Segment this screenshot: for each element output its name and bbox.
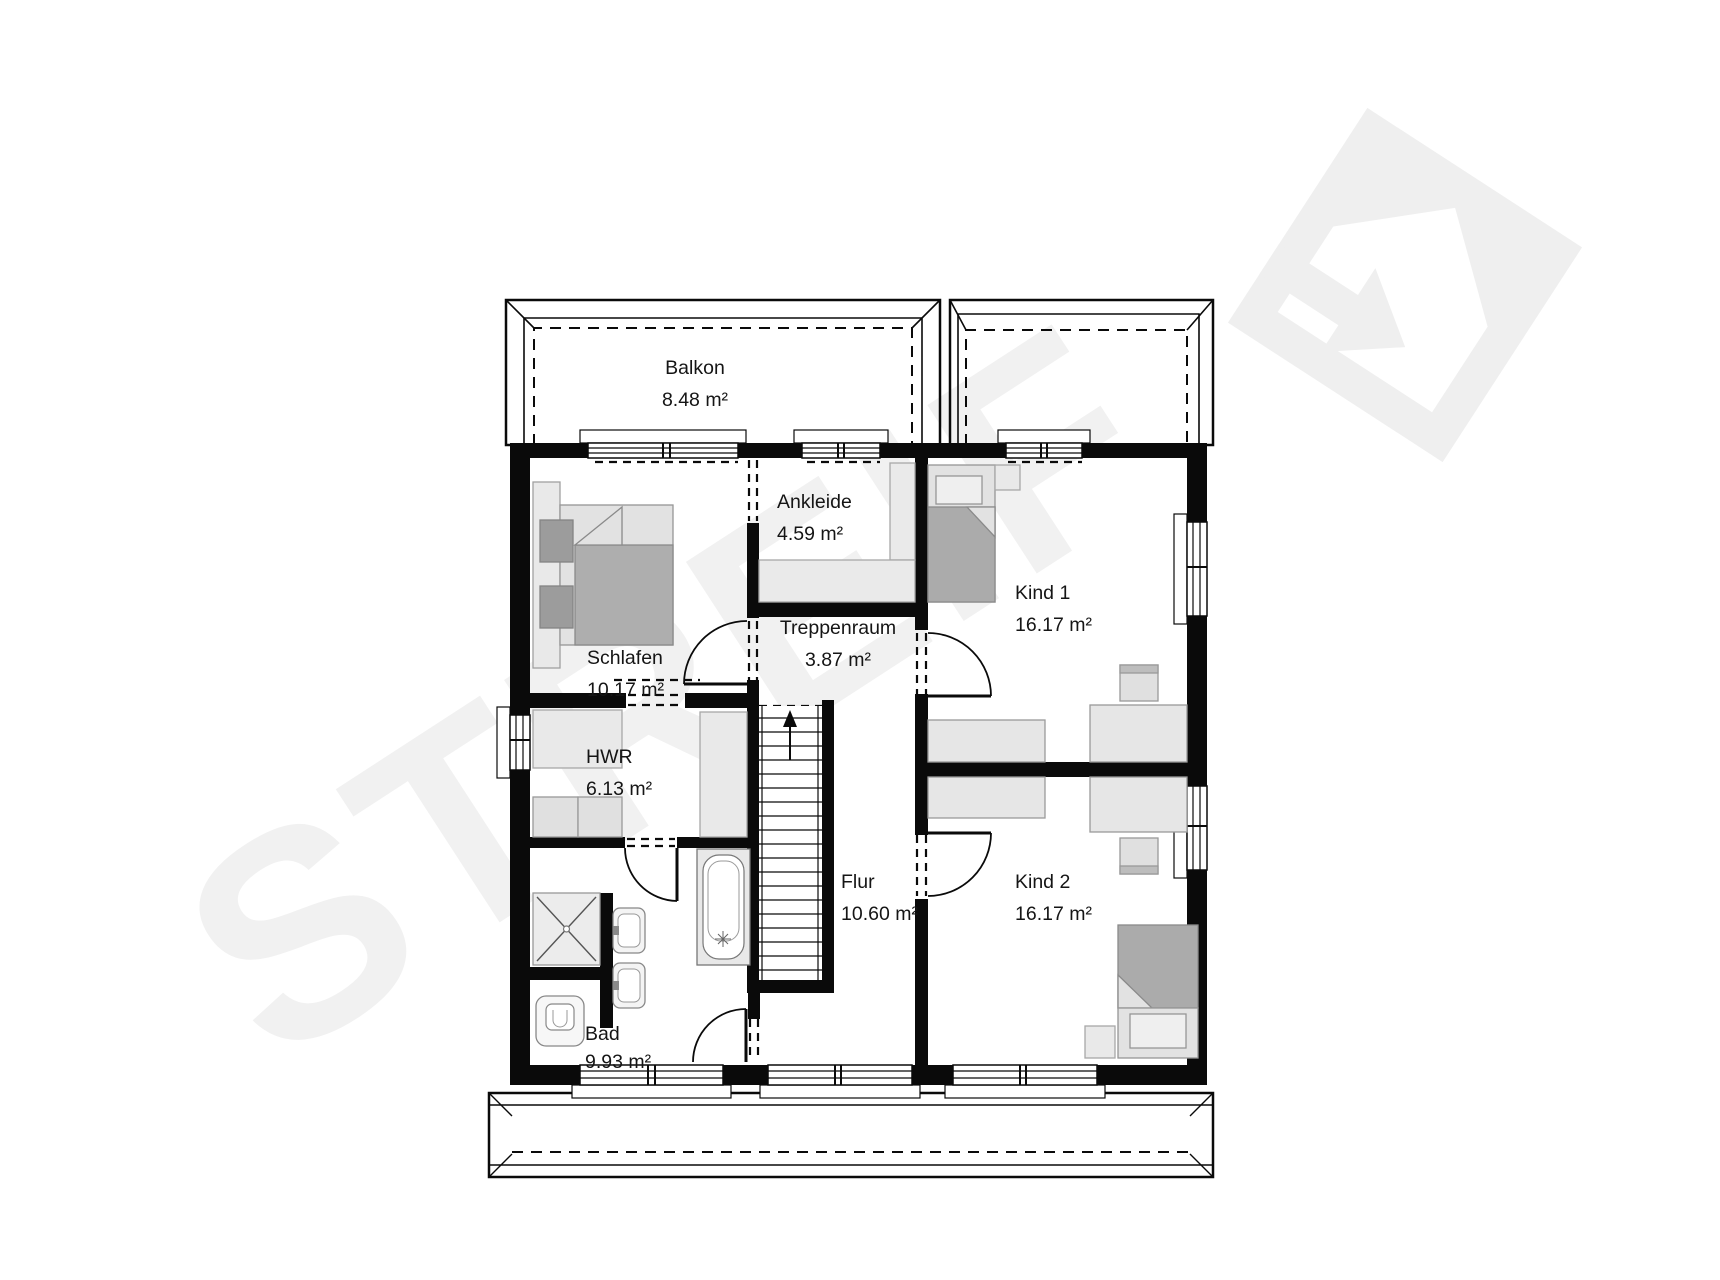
watermark-house-logo [1228,108,1582,462]
window-kind1-top [998,430,1090,458]
bathtub [697,849,750,965]
window-kind2-bottom [945,1065,1105,1098]
room-area: 16.17 m² [1015,614,1092,636]
room-name: Ankleide [777,491,852,513]
room-name: Treppenraum [780,617,896,639]
room-area: 10.60 m² [841,903,918,925]
room-name: Balkon [665,357,725,379]
room-label-bad: Bad 9.93 m² [585,1020,651,1076]
room-area: 10.17 m² [587,679,664,701]
room-area: 8.48 m² [662,389,728,411]
room-label-flur: Flur 10.60 m² [841,866,918,930]
room-label-kind1: Kind 1 16.17 m² [1015,577,1092,641]
washbasin-1 [613,908,645,953]
room-area: 3.87 m² [805,649,871,671]
roof-eave-bottom [489,1093,1213,1177]
room-name: Bad [585,1023,620,1045]
room-label-treppenraum: Treppenraum 3.87 m² [780,612,896,676]
staircase [759,706,822,980]
room-label-kind2: Kind 2 16.17 m² [1015,866,1092,930]
window-ankleide [794,430,888,458]
room-name: Flur [841,871,875,893]
furniture-schlafen-bed [533,482,673,668]
door-kind2 [928,833,991,896]
room-area: 4.59 m² [777,523,843,545]
toilet [536,996,584,1046]
room-name: Schlafen [587,647,663,669]
room-area: 9.93 m² [585,1051,651,1073]
room-label-schlafen: Schlafen 10.17 m² [587,642,664,706]
floorplan-canvas: STREIF [0,0,1720,1280]
door-kind1 [928,633,991,696]
window-schlafen [580,430,746,458]
door-bad [693,1009,746,1062]
window-flur [760,1065,920,1098]
window-kind1-right [1174,514,1207,624]
room-area: 6.13 m² [586,778,652,800]
room-name: HWR [586,746,633,768]
room-name: Kind 1 [1015,582,1070,604]
window-hwr-left [497,707,530,778]
washbasin-2 [613,963,645,1008]
room-name: Kind 2 [1015,871,1070,893]
room-label-ankleide: Ankleide 4.59 m² [777,486,852,550]
room-label-balkon: Balkon 8.48 m² [662,352,728,416]
roof-overhang-top-right [950,300,1213,445]
room-label-hwr: HWR 6.13 m² [586,741,652,805]
door-hwr [625,848,677,901]
shower [533,893,600,965]
room-area: 16.17 m² [1015,903,1092,925]
door-schlafen [684,621,747,684]
